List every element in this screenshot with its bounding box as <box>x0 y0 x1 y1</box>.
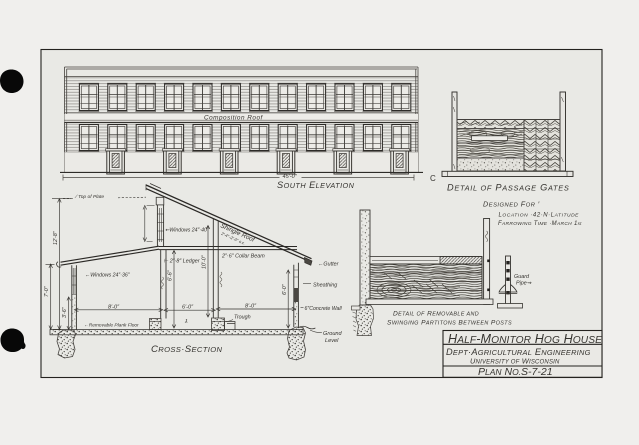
svg-text:ƛ: ƛ <box>184 319 188 325</box>
svg-text:Trough: Trough <box>234 315 251 321</box>
svg-text:12′-8″: 12′-8″ <box>53 230 59 245</box>
svg-text:8′-0″: 8′-0″ <box>108 304 120 310</box>
svg-text:⇜Windows 24″·40″: ⇜Windows 24″·40″ <box>165 228 209 234</box>
svg-text:7′-0″: 7′-0″ <box>44 285 50 297</box>
svg-text:←Removable Plank Floor: ←Removable Plank Floor <box>84 323 139 329</box>
svg-text:PLAN NO.S-7-21: PLAN NO.S-7-21 <box>478 366 553 378</box>
svg-text:LOCATION ·42·N·LATITUDE: LOCATION ·42·N·LATITUDE <box>499 213 580 219</box>
svg-text:6′-0″: 6′-0″ <box>282 283 288 295</box>
svg-text:DETAIL OF PASSAGE GATES: DETAIL OF PASSAGE GATES <box>447 183 570 193</box>
svg-text:6′-0″: 6′-0″ <box>182 305 194 311</box>
svg-text:Level: Level <box>325 338 339 344</box>
svg-text:FARROWING TIME ·MARCH 1st: FARROWING TIME ·MARCH 1st <box>498 221 582 227</box>
svg-text:DEPT·AGRICULTURAL ENGINEERING: DEPT·AGRICULTURAL ENGINEERING <box>446 347 591 357</box>
svg-text:10′-0″: 10′-0″ <box>202 254 208 269</box>
svg-text:C: C <box>430 174 436 183</box>
svg-text:45′-0″: 45′-0″ <box>283 174 298 180</box>
svg-text:SWINGING PARTITONS BETWEEN POS: SWINGING PARTITONS BETWEEN POSTS <box>387 320 512 327</box>
svg-text:←Windows 24″·36″: ←Windows 24″·36″ <box>85 273 130 279</box>
svg-text:HALF-MONITOR HOG HOUSE: HALF-MONITOR HOG HOUSE <box>448 332 602 346</box>
svg-text:2″·6″ Collar Beam: 2″·6″ Collar Beam <box>221 254 265 260</box>
svg-text:Pipe⇝: Pipe⇝ <box>516 281 532 287</box>
svg-text:6′-6″: 6′-6″ <box>168 269 174 281</box>
svg-text:⊢ 2″·8″ Ledger: ⊢ 2″·8″ Ledger <box>164 259 200 265</box>
svg-text:Guard: Guard <box>514 274 530 280</box>
svg-text:SOUTH ELEVATION: SOUTH ELEVATION <box>277 180 355 190</box>
svg-text:Sheathing: Sheathing <box>313 283 337 289</box>
svg-text:CROSS·SECTION: CROSS·SECTION <box>151 344 222 355</box>
svg-text:3′-6″: 3′-6″ <box>62 306 68 318</box>
svg-text:←Gutter: ←Gutter <box>318 262 339 268</box>
svg-text:8′-0″: 8′-0″ <box>245 304 257 310</box>
svg-text:Ground: Ground <box>323 331 343 337</box>
svg-text:∕ Top of Plate: ∕ Top of Plate <box>74 194 104 200</box>
svg-text:6″Concrete Wall: 6″Concrete Wall <box>305 306 343 312</box>
svg-text:DETAIL OF REMOVABLE AND: DETAIL OF REMOVABLE AND <box>393 311 479 318</box>
svg-text:Composition Roof: Composition Roof <box>204 114 264 121</box>
